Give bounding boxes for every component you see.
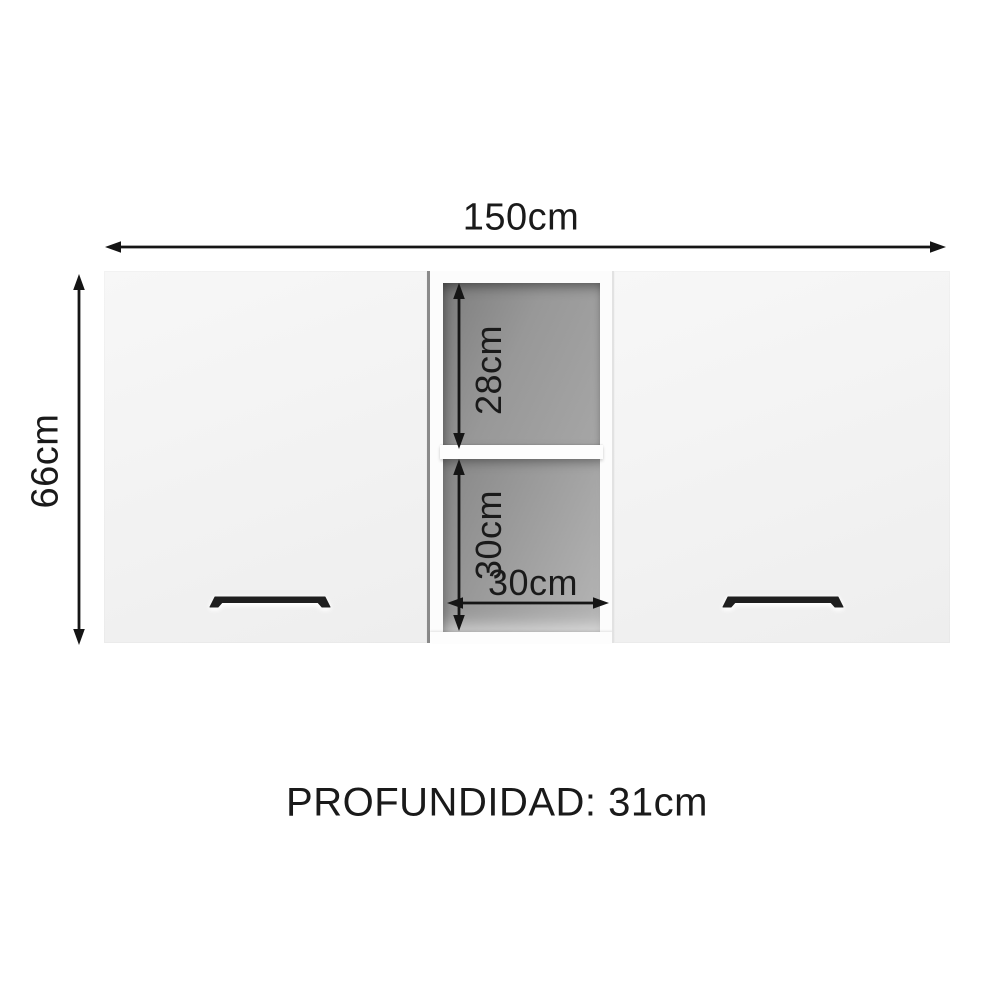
compartment-width-arrow-icon — [445, 596, 611, 610]
left-door-handle — [209, 594, 331, 608]
upper-compartment-height-label: 28cm — [468, 325, 510, 415]
right-door-panel — [614, 271, 950, 643]
cabinet-dimension-diagram: 150cm 66cm 28cm 30cm — [0, 0, 1000, 1000]
right-door-handle — [722, 594, 844, 608]
upper-compartment-height-arrow-icon — [452, 281, 466, 451]
left-door-panel — [104, 271, 427, 643]
depth-label: PROFUNDIDAD: 31cm — [286, 781, 708, 826]
overall-height-arrow-icon — [72, 272, 86, 647]
upper-shelf-compartment — [443, 283, 600, 445]
bottom-board — [430, 632, 613, 643]
overall-height-label: 66cm — [25, 414, 68, 509]
overall-width-arrow-icon — [103, 240, 948, 254]
overall-width-label: 150cm — [463, 197, 580, 240]
